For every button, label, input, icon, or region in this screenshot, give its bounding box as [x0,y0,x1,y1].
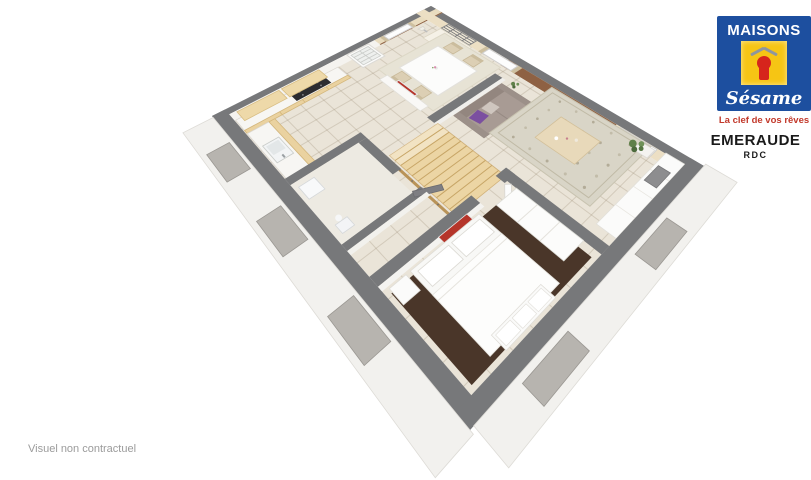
plant [511,82,515,86]
logo-maisons-text: MAISONS [717,22,811,39]
cooktop-burner [302,94,304,96]
model-name: EMERAUDE [700,132,811,149]
plant [639,141,645,147]
rug-pattern-dot [528,147,531,150]
flower-bouquet [432,67,434,69]
logo-sesame-text: Sésame [717,88,811,109]
plant [629,140,637,148]
plant [631,146,637,152]
logo-blue-square: MAISONS Sésame [717,16,811,111]
model-title-block: EMERAUDE RDC [700,132,811,160]
rug-pattern-dot [610,132,613,135]
table-decor [575,139,578,142]
keyhole-icon [741,54,787,84]
rug-pattern-dot [548,109,551,112]
stair-railing-post [437,204,439,206]
rug-pattern-dot [564,172,567,175]
cooktop-burner [320,85,322,87]
plant [639,146,644,151]
rug-pattern-dot [559,100,562,103]
rug-pattern-dot [595,175,598,178]
rug-pattern-dot [592,121,595,124]
table-decor [566,137,568,139]
rug-pattern-dot [583,186,586,189]
rug-pattern-dot [575,110,578,113]
floorplan-3d [0,0,811,480]
rug-pattern-dot [536,117,539,120]
rug-pattern-dot [607,164,610,167]
stair-railing-post [411,180,413,182]
plant [512,85,515,88]
table-decor [554,136,558,140]
rug-pattern-dot [512,136,515,139]
wc-toilet [335,214,342,221]
logo-tagline: La clef de vos rêves [707,115,811,126]
rug-pattern-dot [524,126,527,129]
page-canvas: MAISONS Sésame La clef de vos rêves EMER… [0,0,811,480]
logo-yellow-square [741,41,787,85]
model-floor-level: RDC [700,150,811,160]
maisons-sesame-logo: MAISONS Sésame La clef de vos rêves [717,16,811,111]
rug-pattern-dot [546,160,549,163]
flower-bouquet [434,66,436,68]
rug-pattern-dot [618,153,621,156]
plant [516,83,519,86]
disclaimer-text: Visuel non contractuel [28,443,136,455]
